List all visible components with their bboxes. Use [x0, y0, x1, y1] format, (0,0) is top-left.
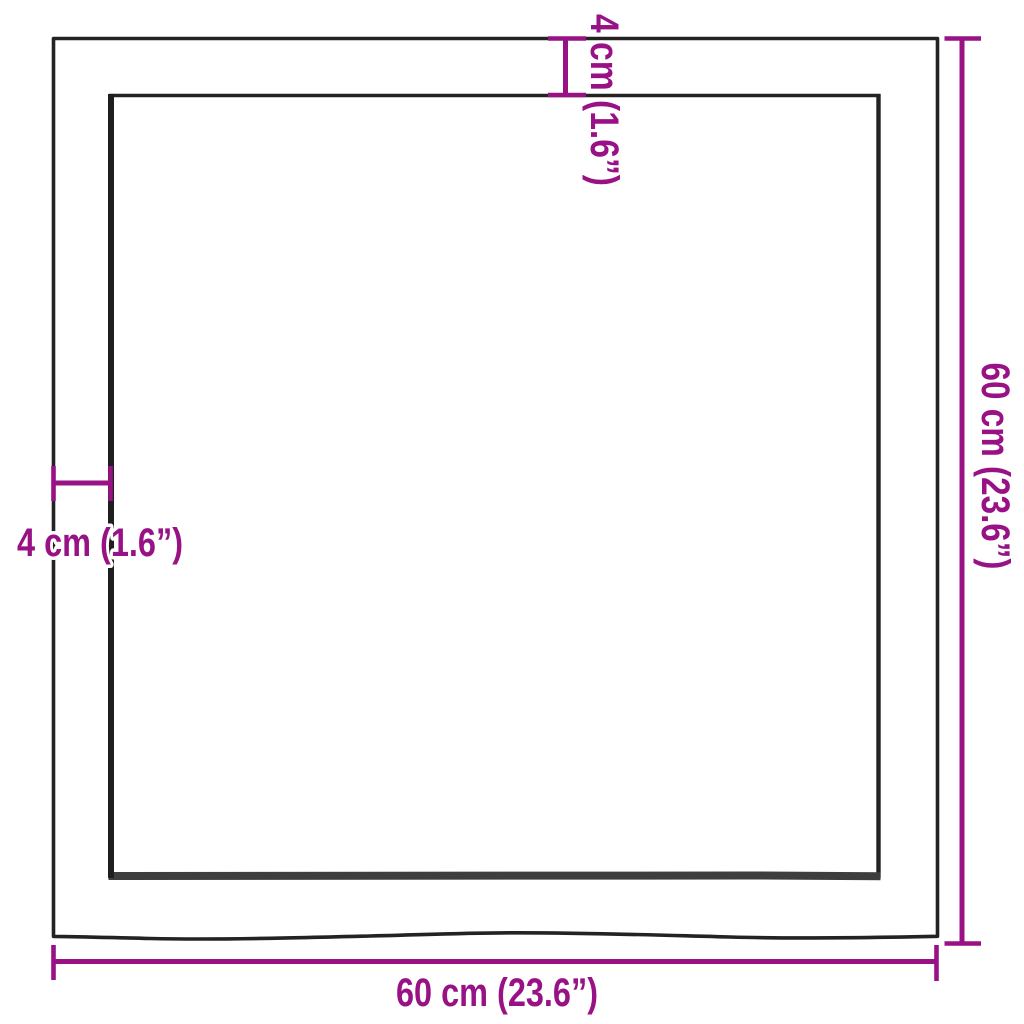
left-thickness-label: 4 cm (1.6”): [17, 521, 183, 565]
product-dimension-diagram: 4 cm (1.6”) 4 cm (1.6”) 60 cm (23.6”) 60…: [0, 0, 1024, 1024]
diagram-svg: 4 cm (1.6”) 4 cm (1.6”) 60 cm (23.6”) 60…: [0, 0, 1024, 1024]
top-thickness-dimension: [548, 37, 586, 96]
height-dimension-label: 60 cm (23.6”): [973, 363, 1017, 570]
width-dimension-label: 60 cm (23.6”): [396, 971, 598, 1015]
board-outer-edge: [54, 39, 938, 939]
top-thickness-label: 4 cm (1.6”): [582, 14, 626, 186]
board-inner-edge-bottom-shadow: [109, 875, 881, 876]
left-thickness-dimension: [52, 466, 112, 501]
